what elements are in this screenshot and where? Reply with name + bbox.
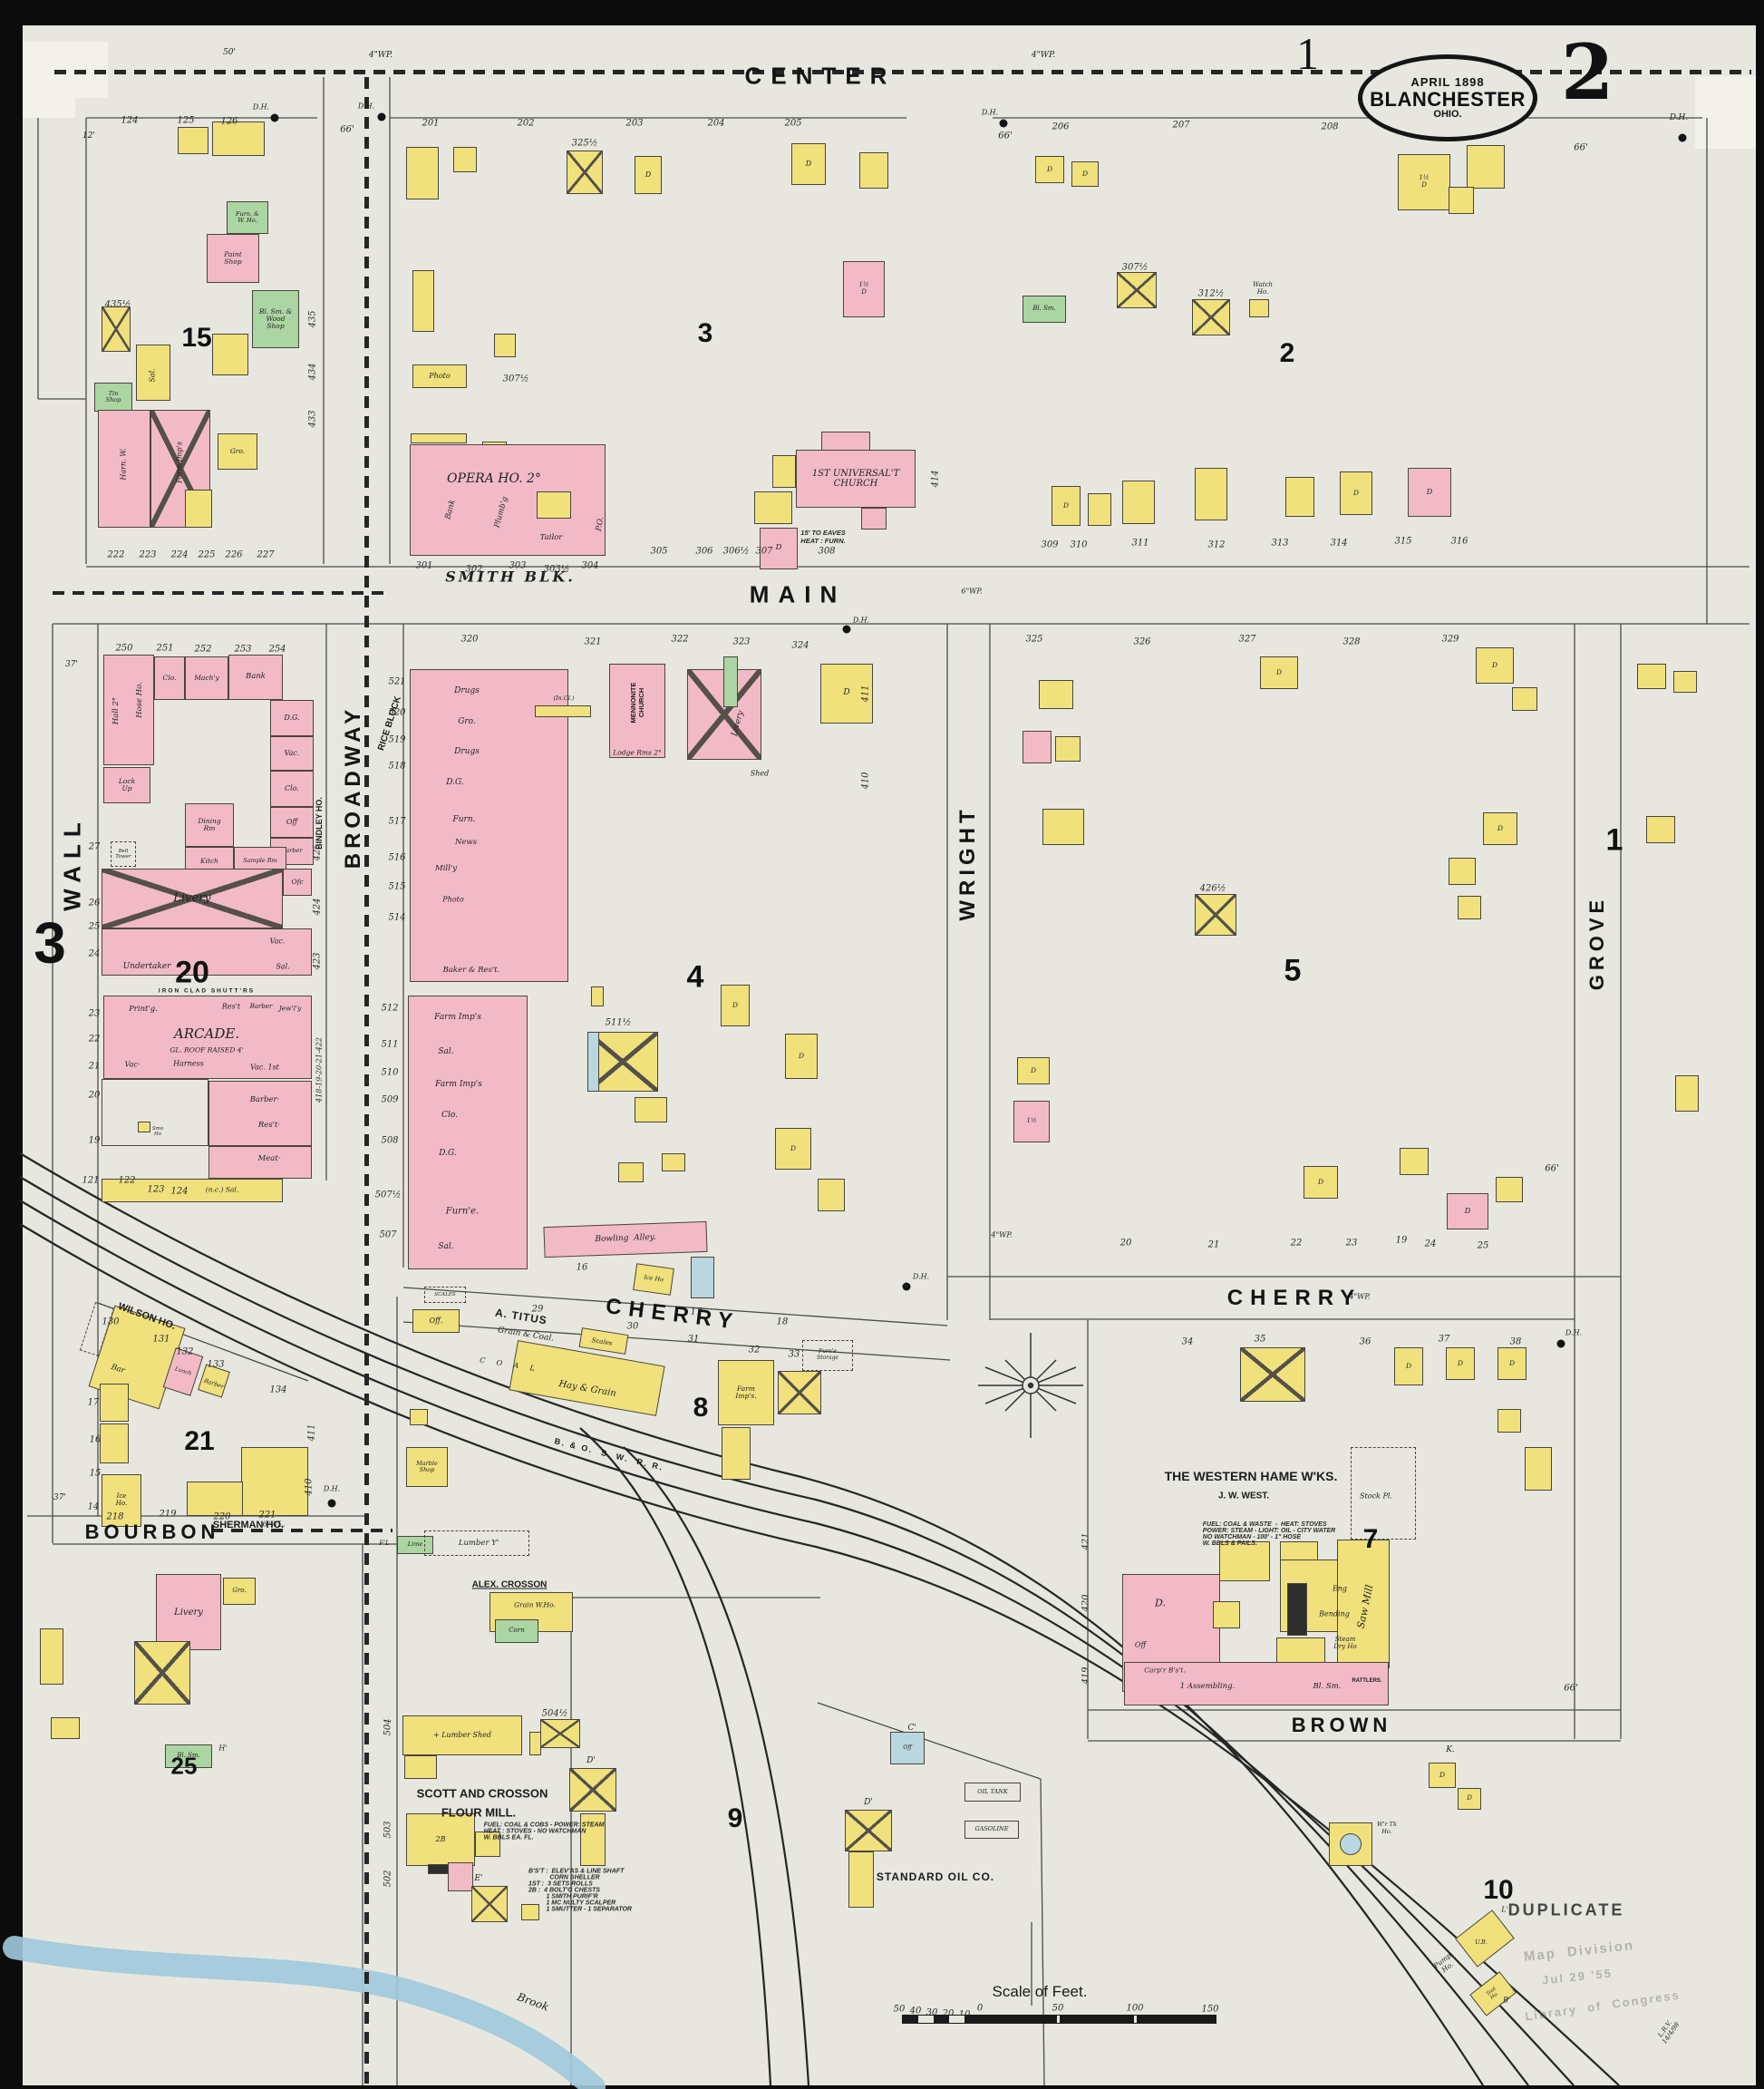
building: Bl. Sm.	[1023, 296, 1066, 323]
building	[529, 1732, 541, 1755]
lot-number: 301	[415, 561, 432, 571]
street-label: BROADWAY	[341, 705, 366, 869]
lot-number: 205	[784, 119, 801, 129]
street-label: MAIN	[750, 581, 846, 609]
lot-number: 410	[305, 1478, 315, 1495]
map-label: Photo	[442, 896, 463, 904]
lot-number: 221	[258, 1511, 276, 1521]
city-name: BLANCHESTER	[1370, 89, 1526, 110]
map-label: Carp'r B's't.	[1144, 1666, 1186, 1675]
lot-number: 329	[1441, 635, 1459, 645]
lot-number: 309	[1041, 540, 1058, 550]
lot-number: 22	[89, 1035, 101, 1044]
building	[212, 334, 248, 375]
building	[509, 1340, 664, 1416]
lot-number: 204	[707, 119, 724, 129]
building	[535, 705, 591, 717]
lot-number: 306½	[723, 547, 750, 557]
map-label: FUEL: COAL & WASTE - HEAT: STOVES POWER:…	[1203, 1521, 1335, 1547]
lot-number: 420	[1081, 1594, 1091, 1611]
lot-number: 254	[268, 645, 286, 655]
lot-number: 24	[1425, 1239, 1437, 1249]
lot-number: 253	[234, 645, 251, 655]
lot-number: 122	[118, 1176, 135, 1186]
adjacent-sheet-number: 1	[1296, 27, 1319, 80]
map-label: Sal.	[149, 368, 157, 382]
map-label: D.G.	[439, 1149, 457, 1158]
building: Tin Shop	[94, 383, 132, 412]
lot-number: 21	[1208, 1240, 1220, 1250]
building: D	[1071, 161, 1099, 187]
map-label: D.H.	[1565, 1329, 1582, 1337]
map-label: Meat·	[258, 1154, 281, 1163]
lot-number: 0	[977, 2004, 983, 2014]
map-label: Print'g.	[129, 1005, 158, 1014]
map-label: Harn. W.	[120, 448, 128, 480]
lot-number: 25	[1478, 1241, 1489, 1251]
lot-number: 38	[1510, 1337, 1522, 1347]
lot-number: 206	[1052, 122, 1069, 132]
map-label: 12'	[82, 131, 95, 141]
lot-number: 16	[90, 1435, 102, 1445]
building	[772, 455, 796, 488]
building: Ofc	[283, 869, 312, 896]
building	[569, 1768, 616, 1812]
lot-number: 511½	[606, 1018, 632, 1028]
map-label: Drugs	[454, 747, 480, 756]
building: Dining Rm	[185, 803, 234, 847]
map-label: Jul 29 '55	[1541, 1966, 1613, 1987]
building: Off.	[412, 1309, 460, 1333]
lot-number: 434	[308, 363, 318, 380]
map-label: Vac. 1st	[250, 1064, 279, 1072]
map-label: 66'	[1564, 1684, 1577, 1694]
lot-number: 126	[220, 117, 237, 127]
map-label: Sal.	[276, 963, 289, 971]
building: Bl. Sm. & Wood Shop	[252, 290, 299, 348]
sanborn-map-sheet: Furn. & W. Ho.Paint ShopBl. Sm. & Wood S…	[0, 0, 1764, 2089]
lot-number: 307½	[503, 374, 529, 384]
map-label: MENNONITE CHURCH	[629, 683, 645, 724]
lot-number: 302	[465, 565, 482, 575]
street-label: BOURBON	[85, 1521, 220, 1544]
map-label: Barber	[250, 1003, 273, 1010]
map-label: 37'	[53, 1493, 66, 1502]
building	[1287, 1583, 1307, 1636]
building: D	[1458, 1788, 1481, 1810]
map-label: U.B.	[1475, 1938, 1488, 1946]
map-label: D.H.	[253, 103, 269, 112]
lot-number: 521	[388, 677, 405, 687]
building: D	[1446, 1347, 1475, 1380]
lot-number: 312	[1207, 540, 1225, 550]
map-label: Off	[1135, 1641, 1146, 1649]
lot-number: 132	[176, 1347, 193, 1357]
map-label: J. W. WEST.	[1218, 1491, 1269, 1501]
map-label: D.G.	[446, 778, 464, 787]
building	[1496, 1177, 1523, 1202]
building: D	[1052, 486, 1081, 526]
building: D	[1035, 156, 1064, 183]
scale-bar	[902, 2015, 1216, 2024]
building	[1117, 272, 1157, 308]
lot-number: 320	[460, 635, 478, 645]
map-label: RATTLERS.	[1352, 1678, 1381, 1684]
lot-number: 134	[269, 1385, 286, 1395]
map-label: IRON CLAD SHUTT'RS	[159, 988, 255, 995]
lot-number: 325½	[572, 139, 598, 149]
building	[51, 1717, 80, 1739]
map-label: Farm Imp's	[435, 1080, 482, 1089]
street-label: CHERRY	[1227, 1286, 1362, 1311]
lot-number: 435½	[105, 300, 131, 310]
lot-number: 252	[194, 645, 211, 655]
block-number: 21	[184, 1426, 214, 1457]
building	[100, 1423, 129, 1463]
lot-number: 433	[308, 410, 318, 427]
lot-number: 322	[671, 635, 688, 645]
building	[185, 490, 212, 528]
building: Tool Ho.	[1469, 1971, 1517, 2016]
lot-number: 520	[388, 708, 405, 718]
building: Photo	[412, 364, 467, 388]
block-number: 9	[728, 1803, 743, 1834]
map-label: 6"WP.	[961, 588, 982, 596]
map-label: GL. ROOF RAISED 4'	[170, 1046, 243, 1054]
building	[1646, 816, 1675, 843]
lot-number: 308	[818, 547, 835, 557]
lot-number: 16	[577, 1263, 588, 1273]
map-label: STANDARD OIL CO.	[877, 1870, 994, 1883]
building: Farm Imp's.	[718, 1360, 774, 1425]
map-label: 66'	[998, 131, 1012, 141]
building	[208, 1081, 312, 1146]
lot-number: 33	[789, 1350, 800, 1360]
building	[1195, 894, 1236, 936]
lot-number: 150	[1201, 2005, 1218, 2015]
lot-number: 326	[1133, 637, 1150, 647]
building	[412, 270, 434, 332]
building	[187, 1482, 243, 1516]
building	[1340, 1833, 1362, 1855]
building: Off	[270, 807, 314, 838]
map-label: Grain W.Ho.	[514, 1601, 556, 1609]
map-label: Bending	[1319, 1610, 1350, 1618]
building: D	[1408, 468, 1451, 517]
building: Marble Shop	[406, 1447, 448, 1487]
building: D	[785, 1034, 818, 1079]
lot-number: 227	[257, 550, 274, 560]
map-label: E'	[474, 1874, 482, 1883]
map-label: Lodge Rms 2°	[613, 749, 661, 757]
building: Furn. & W. Ho.	[227, 201, 268, 234]
map-label: Drugs	[454, 686, 480, 695]
lot-number: 503	[383, 1821, 393, 1838]
building: Furn'e Storage	[802, 1340, 853, 1371]
block-number: 2	[1280, 338, 1295, 369]
lot-number: 25	[89, 922, 101, 932]
map-label: 50'	[223, 48, 236, 57]
building: D	[1260, 656, 1298, 689]
building	[1039, 680, 1073, 709]
hydrant-dot	[271, 114, 279, 122]
lot-number: 423	[313, 952, 323, 969]
building	[537, 491, 571, 519]
building: Clo.	[270, 771, 314, 807]
lot-number: 303	[509, 561, 526, 571]
building	[691, 1257, 714, 1298]
map-label: FUEL: COAL & COBS - POWER: STEAM HEAT : …	[484, 1822, 605, 1841]
map-label: Farm Imp's	[434, 1013, 481, 1022]
map-date: APRIL 1898	[1410, 76, 1484, 89]
lot-number: 310	[1070, 540, 1087, 550]
building	[1458, 896, 1481, 919]
lot-number: 27	[89, 842, 101, 852]
lot-number: 26	[89, 899, 101, 908]
building: GASOLINE	[964, 1821, 1019, 1839]
street-label: CHERRY	[605, 1294, 741, 1336]
building: 2B	[406, 1813, 475, 1866]
lot-number: 508	[381, 1136, 398, 1146]
building	[410, 1409, 428, 1425]
building	[1276, 1637, 1325, 1663]
building	[1512, 687, 1537, 711]
map-label: (n.c.) Sal.	[206, 1186, 238, 1194]
building	[1525, 1447, 1552, 1491]
building	[662, 1153, 685, 1171]
lot-number: 123	[147, 1185, 164, 1195]
lot-number: 251	[156, 644, 173, 654]
map-label: BINDLEY HO.	[315, 797, 324, 850]
building	[1249, 299, 1269, 317]
building	[845, 1810, 892, 1851]
map-label: 66'	[340, 125, 354, 135]
building	[722, 1427, 751, 1480]
map-label: Shed	[751, 770, 770, 778]
building: Corn	[495, 1619, 538, 1643]
building: D	[1483, 812, 1517, 845]
lot-number: 15	[90, 1469, 102, 1479]
lot-number: 121	[82, 1176, 99, 1186]
lot-number: 50	[894, 2005, 906, 2015]
lot-number: 304	[581, 561, 598, 571]
building: Bowling Alley.	[543, 1221, 707, 1258]
building: Clo.	[154, 656, 185, 700]
map-label: News	[455, 838, 477, 847]
lot-number: 515	[388, 882, 405, 892]
lot-number: 203	[625, 119, 643, 129]
map-label: Vac.	[270, 938, 286, 946]
lot-number: 222	[107, 550, 124, 560]
lot-number: 421	[1081, 1532, 1091, 1550]
building	[754, 491, 792, 524]
lot-number: 130	[102, 1317, 119, 1327]
map-label: Brook	[516, 1990, 551, 2014]
lot-number: 514	[388, 913, 405, 923]
map-label: Furn.	[452, 815, 475, 824]
lot-number: 14	[88, 1502, 100, 1512]
lot-number: 511	[381, 1040, 398, 1050]
map-label: Res't·	[258, 1121, 280, 1130]
lot-number: 411	[307, 1423, 317, 1441]
building	[134, 1641, 190, 1705]
block-number: 15	[181, 323, 211, 354]
map-label: Barber·	[250, 1095, 280, 1104]
map-label: OPERA HO. 2°	[447, 471, 541, 486]
lot-number: 100	[1126, 2004, 1143, 2014]
lot-number: 250	[115, 644, 132, 654]
map-label: Undertaker	[123, 962, 171, 971]
lot-number: 312½	[1198, 289, 1225, 299]
building: Vac.	[270, 736, 314, 771]
building	[861, 508, 887, 530]
building	[138, 1122, 150, 1132]
lot-number: 314	[1330, 539, 1347, 549]
lot-number: 32	[749, 1346, 761, 1355]
lot-number: 50	[1052, 2004, 1064, 2014]
map-label: Tailor	[540, 533, 563, 542]
building	[1285, 477, 1314, 517]
map-label: B'S'T : ELEV'AS & LINE SHAFT CORN SHELLE…	[528, 1869, 632, 1913]
map-label: D.H.	[913, 1273, 929, 1281]
map-label: Watch Ho.	[1253, 281, 1273, 296]
lot-number: 226	[225, 550, 242, 560]
lot-number: 435	[308, 310, 318, 327]
building	[859, 152, 888, 189]
lot-number: 519	[388, 735, 405, 745]
map-label: Lumber Y'	[459, 1539, 499, 1548]
building: D	[1017, 1057, 1050, 1084]
street-label: WALL	[59, 815, 87, 911]
building: D	[775, 1128, 811, 1170]
lot-number: 124	[170, 1187, 188, 1197]
building	[587, 1032, 599, 1092]
building: Lock Up	[103, 767, 150, 803]
lot-number: 305	[650, 547, 667, 557]
building	[1449, 858, 1476, 885]
building: Bank	[228, 655, 283, 700]
building: 1½ D	[843, 261, 885, 317]
lot-number: 208	[1321, 122, 1338, 132]
map-label: Eng	[1333, 1585, 1347, 1593]
map-label: C'	[907, 1724, 916, 1733]
map-label: Jew'l'y	[279, 1005, 302, 1013]
lot-number: 311	[1131, 539, 1149, 549]
building	[100, 1384, 129, 1422]
map-label: D.H.	[853, 617, 869, 625]
building: 1½	[1013, 1101, 1050, 1142]
map-label: Sal.	[438, 1047, 453, 1056]
building	[102, 306, 131, 352]
building	[1449, 187, 1474, 214]
building: D	[1497, 1347, 1527, 1380]
block-number: 3	[34, 909, 66, 976]
block-number: 8	[693, 1393, 709, 1423]
lot-number: 327	[1238, 635, 1255, 645]
building	[1675, 1075, 1699, 1112]
map-label: Clo.	[441, 1111, 458, 1120]
map-paper: Furn. & W. Ho.Paint ShopBl. Sm. & Wood S…	[23, 25, 1756, 2085]
sheet-number: 2	[1561, 27, 1614, 117]
lot-number: 419	[1081, 1666, 1091, 1684]
map-label: Vac·	[125, 1061, 141, 1069]
building	[212, 121, 265, 156]
building: Ice Ho	[633, 1263, 674, 1296]
map-label: Res't	[222, 1003, 240, 1011]
street-label: CENTER	[745, 63, 897, 91]
building	[848, 1851, 874, 1908]
block-number: 4	[687, 960, 704, 996]
street-label: GROVE	[1585, 896, 1609, 990]
building	[448, 1862, 473, 1891]
lot-number: 518	[388, 762, 405, 772]
building: 1½ D	[1398, 154, 1450, 210]
building	[494, 334, 516, 357]
map-label: F'L	[379, 1540, 389, 1547]
lot-number: 306	[695, 547, 712, 557]
building: OIL TANK	[964, 1783, 1021, 1802]
lot-number: 202	[517, 119, 534, 129]
building	[1673, 671, 1697, 693]
lot-number: 321	[584, 637, 601, 647]
lot-number: 411	[861, 685, 871, 702]
map-label: Gro.	[458, 717, 476, 726]
building	[540, 1719, 580, 1748]
lot-number: 201	[422, 119, 439, 129]
lot-number: 35	[1255, 1335, 1266, 1345]
street-label: BROWN	[1292, 1714, 1392, 1737]
map-label: Steam Dry Ho	[1333, 1636, 1356, 1650]
building	[453, 147, 477, 172]
lot-number: 17	[88, 1398, 100, 1408]
lot-number: 418-19-20-21-422	[315, 1037, 324, 1103]
map-label: Hose Ho.	[135, 682, 144, 718]
building	[471, 1886, 508, 1922]
building: Gro.	[218, 433, 257, 470]
map-label: L'	[1501, 1906, 1508, 1914]
map-label: B'	[1503, 1997, 1510, 2005]
lot-number: 325	[1025, 635, 1042, 645]
building: D	[1447, 1193, 1488, 1229]
building	[40, 1628, 63, 1685]
building	[1219, 1541, 1270, 1581]
lot-number: 307	[755, 547, 772, 557]
lot-number: 34	[1182, 1337, 1194, 1347]
lot-number: 323	[732, 637, 750, 647]
building: D	[1340, 471, 1372, 515]
block-number: 5	[1284, 954, 1302, 989]
map-label: W'r Tk Ho.	[1377, 1821, 1397, 1835]
lot-number: 426½	[1200, 884, 1226, 894]
building	[1240, 1347, 1305, 1402]
lot-number: 36	[1360, 1337, 1371, 1347]
map-label: FLOUR MILL.	[441, 1806, 516, 1820]
map-label: D'	[864, 1798, 873, 1807]
lot-number: 19	[89, 1136, 101, 1146]
map-label: H'	[218, 1744, 227, 1753]
block-number: 3	[698, 318, 713, 349]
lot-number: 37	[1439, 1335, 1450, 1345]
lot-number: 20	[1120, 1239, 1132, 1249]
building: D	[1429, 1763, 1456, 1788]
hydrant-dot	[1679, 134, 1687, 142]
map-content: Furn. & W. Ho.Paint ShopBl. Sm. & Wood S…	[0, 0, 1764, 2089]
lot-number: 19	[1396, 1236, 1408, 1246]
map-label: 66'	[1574, 143, 1587, 153]
map-label: ALEX. CROSSON	[472, 1580, 548, 1590]
building	[1213, 1601, 1240, 1628]
building	[567, 151, 603, 194]
